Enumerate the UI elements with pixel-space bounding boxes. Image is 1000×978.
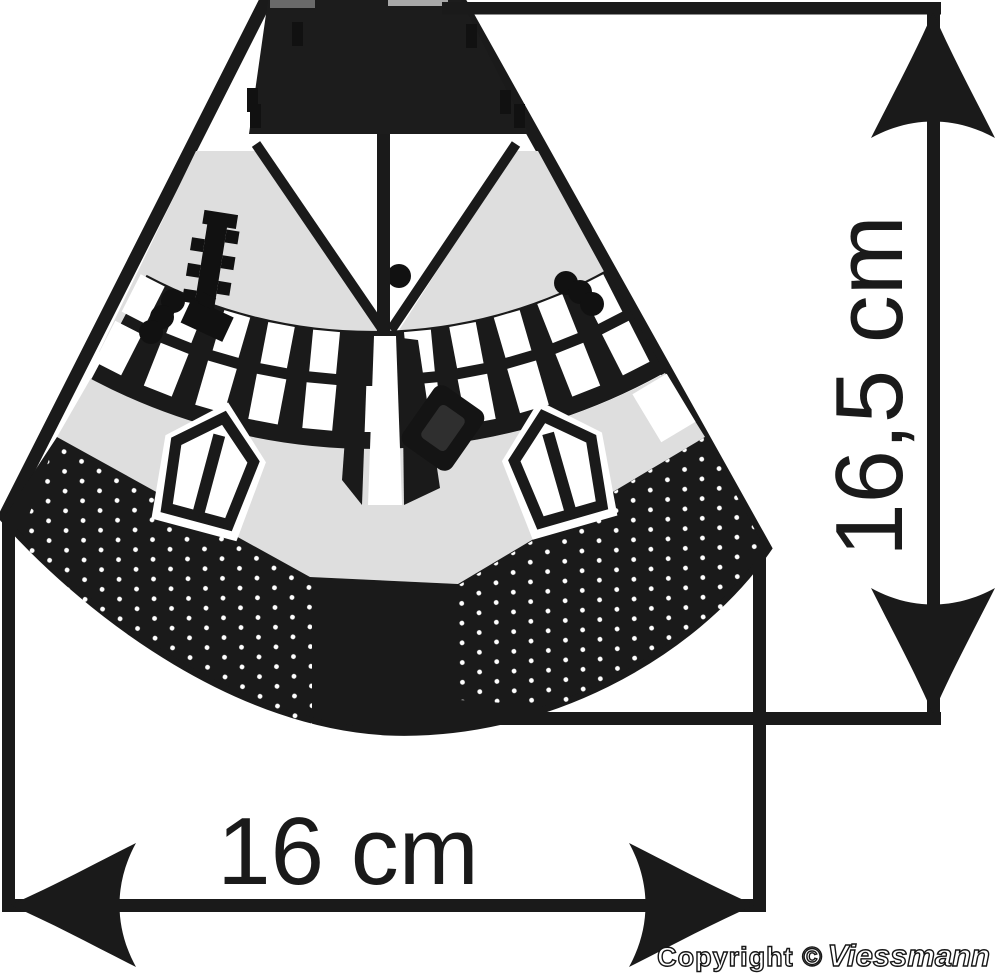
figure-canvas: 16,5 cm 16 cm Copyright © Viessmann [0, 0, 1000, 978]
dimension-diagram: 16,5 cm 16 cm [0, 0, 1000, 978]
extension-line-bottom [385, 712, 941, 725]
ridge-dot [387, 264, 411, 288]
extension-line-left [2, 516, 15, 912]
model-top-view [5, 0, 765, 740]
height-dimension-label: 16,5 cm [816, 215, 923, 556]
extension-line-top [442, 2, 941, 15]
width-dimension-label: 16 cm [217, 798, 478, 905]
brand-logo-text: Viessmann [827, 938, 990, 973]
extension-line-right [753, 550, 766, 912]
arrow-left-icon [10, 843, 136, 967]
roof-ridge-panel [247, 0, 529, 134]
arrow-down-icon [871, 588, 995, 714]
copyright-notice: Copyright © Viessmann [657, 938, 990, 974]
arrow-up-icon [871, 12, 995, 138]
center-ridge-line [377, 130, 390, 334]
copyright-text: Copyright © [657, 942, 823, 972]
